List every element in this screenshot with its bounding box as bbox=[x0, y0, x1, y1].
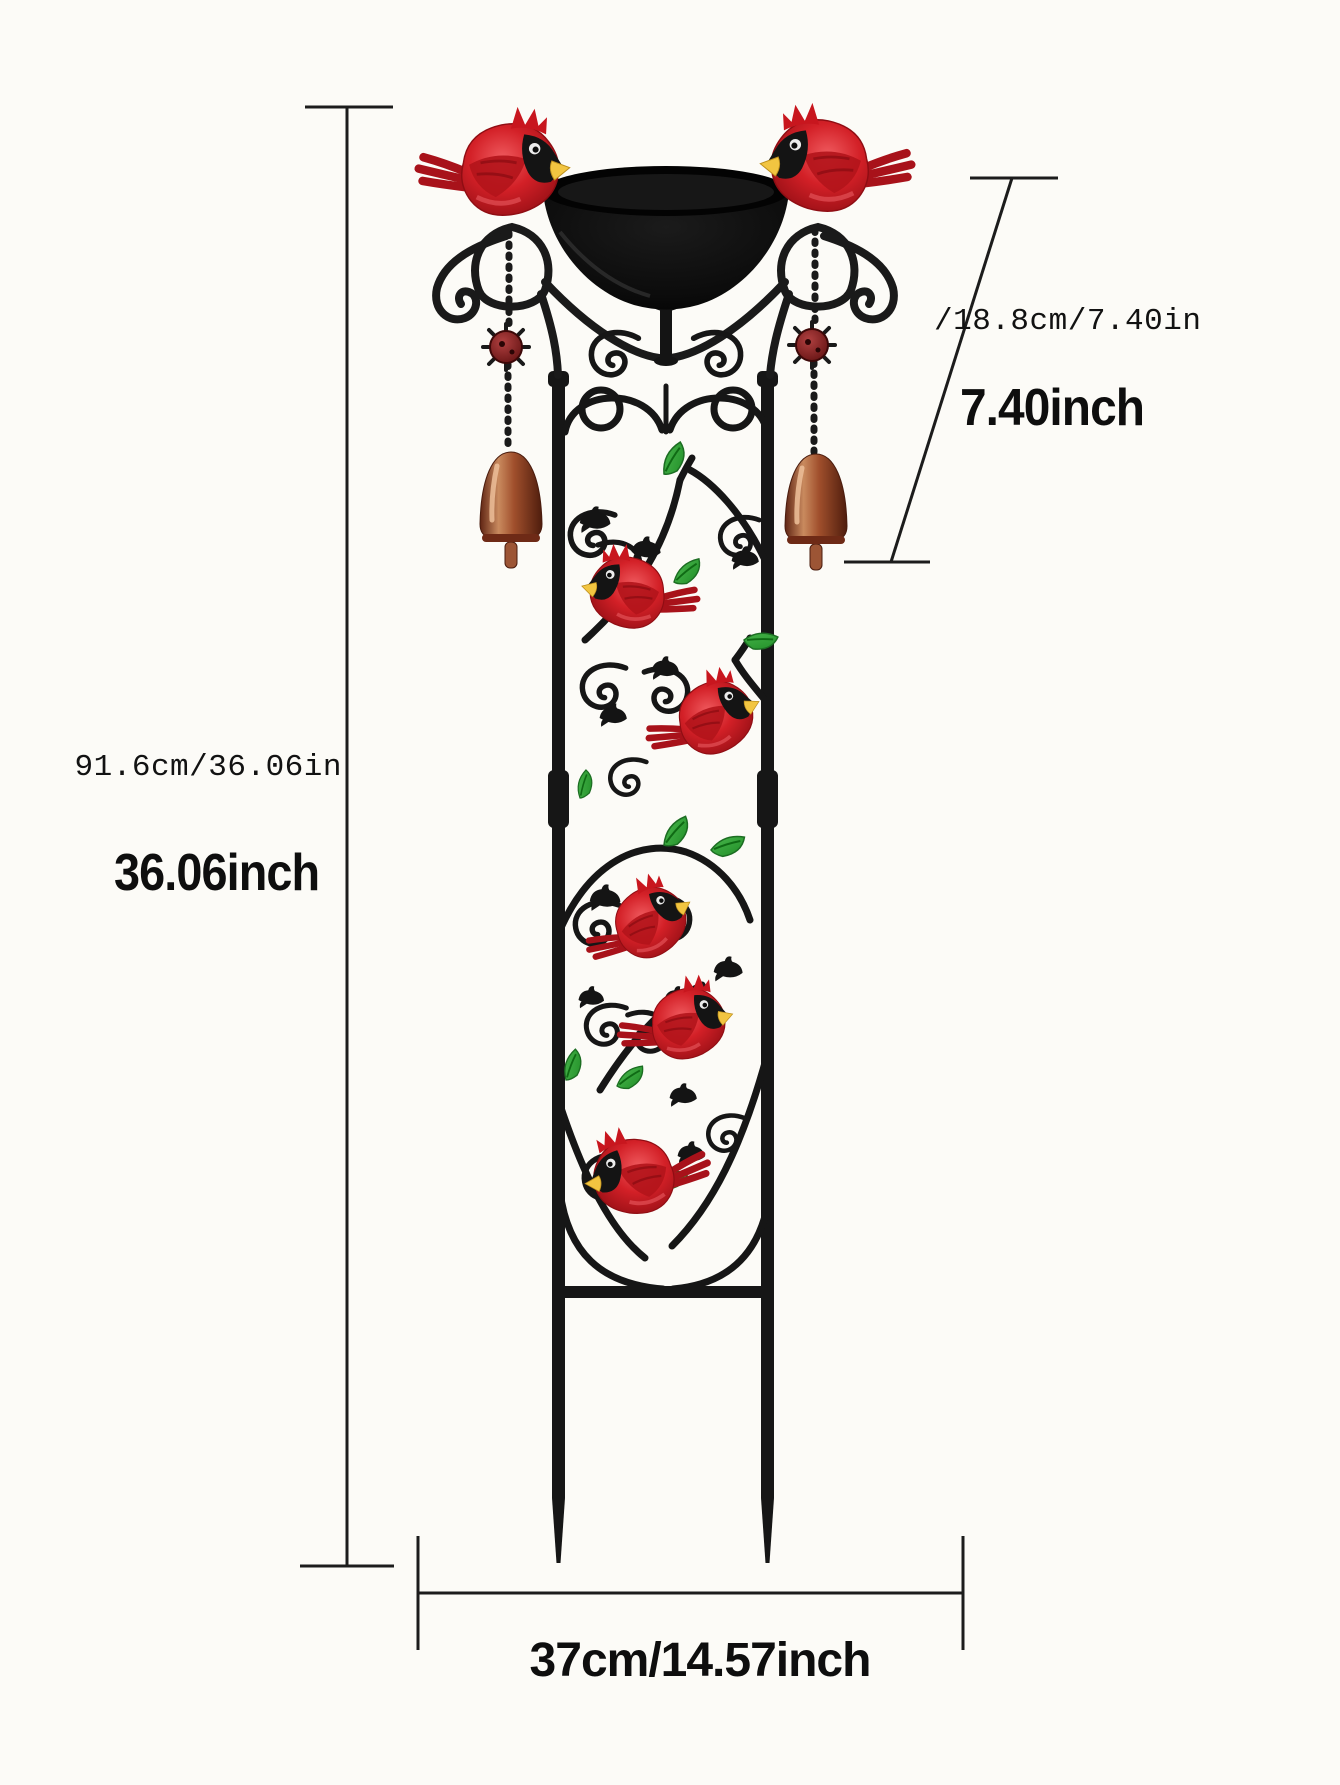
dimension-line-total-height bbox=[300, 107, 394, 1566]
dimension-line-top-section bbox=[844, 178, 1058, 562]
total-height-label-metric: 91.6cm/36.06in bbox=[70, 752, 342, 785]
spiky-ball-left bbox=[483, 324, 529, 370]
cardinal-panel-5 bbox=[576, 1113, 714, 1222]
cardinal-panel-4 bbox=[612, 969, 739, 1070]
panel-curls bbox=[570, 512, 759, 1204]
stake-left bbox=[552, 1290, 565, 1563]
spiky-ball-right bbox=[789, 322, 835, 368]
dimension-line-width bbox=[418, 1536, 963, 1650]
bell-left bbox=[480, 452, 542, 568]
bell-right bbox=[785, 454, 847, 570]
top-section-label-inches: 7.40inch bbox=[960, 381, 1144, 436]
stake-right bbox=[761, 1290, 774, 1563]
panel-bottom bbox=[552, 1192, 774, 1298]
product-dimension-image: 91.6cm/36.06in 36.06inch /18.8cm/7.40in … bbox=[0, 0, 1340, 1785]
top-section-label-metric: /18.8cm/7.40in bbox=[934, 306, 1201, 339]
feeder-bowl bbox=[543, 166, 789, 366]
width-label: 37cm/14.57inch bbox=[400, 1636, 1000, 1686]
panel-cardinals bbox=[570, 540, 770, 1223]
panel-top-scrolls bbox=[565, 386, 767, 432]
total-height-label-inches: 36.06inch bbox=[114, 846, 319, 901]
